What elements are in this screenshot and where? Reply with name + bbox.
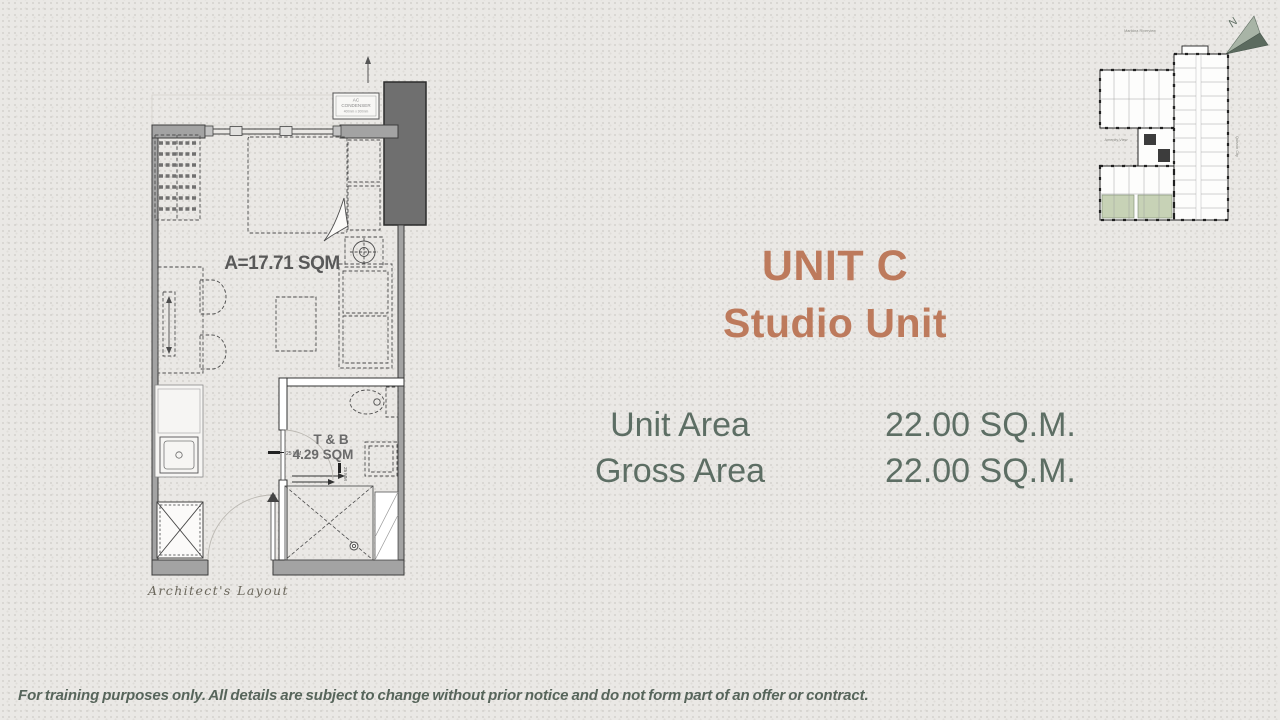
window-band	[205, 126, 341, 136]
keyplan-top-label: Marikina Riverview	[1124, 29, 1156, 33]
ac-label-line1: AC	[353, 98, 360, 103]
building-key-plan: N	[1088, 8, 1275, 240]
coffee-table	[276, 297, 316, 351]
unit-subtitle: Studio Unit	[610, 302, 1060, 345]
sofa	[339, 264, 392, 368]
ac-ledge-block	[384, 82, 426, 225]
vanity	[365, 442, 397, 476]
floor-plan-drawing: AC CONDENSER 400mm x 300mm	[140, 55, 440, 600]
entry-door	[208, 492, 279, 560]
area-row-unit: Unit Area 22.00 SQ.M.	[540, 406, 1140, 452]
utility-point	[345, 237, 383, 267]
interior-walls	[279, 378, 404, 560]
bedside-cabinet	[348, 140, 380, 230]
keyplan-right-label: Quezon City	[1235, 136, 1239, 157]
ac-condenser-box: AC CONDENSER 400mm x 300mm	[333, 93, 379, 119]
dining-set	[158, 267, 226, 373]
plan-caption: Architect's Layout	[147, 583, 289, 598]
ac-label-line3: 400mm x 300mm	[344, 110, 369, 114]
highlighted-unit	[1138, 195, 1172, 218]
north-arrow-icon: N	[1226, 16, 1268, 54]
floor-plan: AC CONDENSER 400mm x 300mm	[140, 55, 440, 600]
gross-area-label: Gross Area	[540, 452, 820, 491]
leader-arrow-icon	[365, 56, 371, 83]
unit-area-value: 22.00 SQ.M.	[885, 406, 1076, 445]
keyplan-left-label: Amenity View	[1105, 138, 1128, 142]
svg-text:25 MM: 25 MM	[343, 467, 348, 481]
kitchen-counter	[155, 385, 203, 477]
gross-area-value: 22.00 SQ.M.	[885, 452, 1076, 491]
bed	[248, 137, 348, 241]
unit-title-block: UNIT C Studio Unit	[610, 244, 1060, 345]
key-plan-drawing: N	[1088, 8, 1275, 240]
wardrobe	[155, 135, 200, 220]
appliance-space	[157, 502, 203, 558]
building-plate	[1100, 46, 1228, 220]
unit-area-label: Unit Area	[540, 406, 820, 445]
north-label: N	[1226, 16, 1240, 30]
disclaimer-text: For training purposes only. All details …	[18, 687, 1118, 704]
ac-label-line2: CONDENSER	[341, 103, 371, 108]
floor-area-label: A=17.71 SQM	[224, 253, 339, 274]
bath-label-1: T & B	[313, 432, 348, 447]
shower	[285, 473, 373, 560]
area-table: Unit Area 22.00 SQ.M. Gross Area 22.00 S…	[540, 406, 1140, 498]
area-row-gross: Gross Area 22.00 SQ.M.	[540, 452, 1140, 498]
slide-canvas: AC CONDENSER 400mm x 300mm	[0, 0, 1280, 720]
unit-title: UNIT C	[610, 244, 1060, 289]
blanket-fold	[324, 198, 348, 241]
bath-label-2: 4.29 SQM	[293, 447, 354, 462]
toilet	[350, 387, 398, 417]
